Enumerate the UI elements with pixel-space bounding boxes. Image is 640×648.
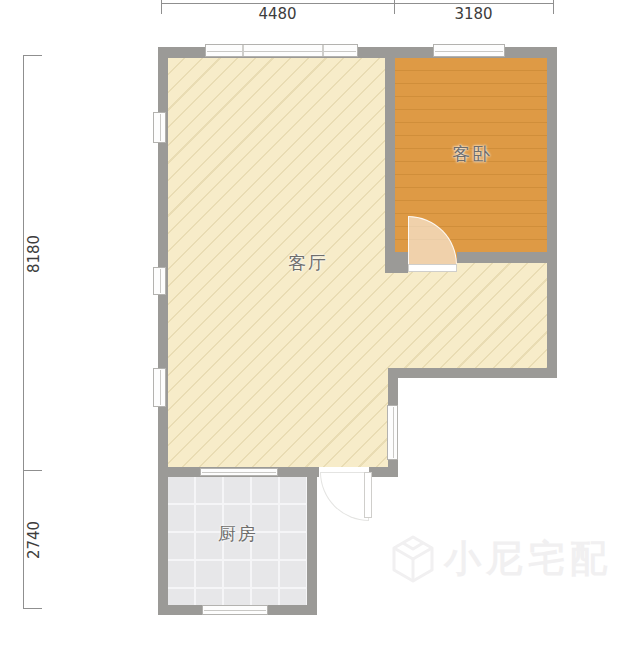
wall-bedroom-left xyxy=(385,47,395,273)
wall-right xyxy=(547,47,557,378)
dimension-label-top-left: 4480 xyxy=(161,5,394,23)
room-label-living: 客厅 xyxy=(263,251,353,275)
wall-bedroom-bottom xyxy=(457,252,557,263)
wall-step-horizontal xyxy=(388,368,557,378)
entry-door-leaf xyxy=(364,472,372,518)
room-label-kitchen: 厨房 xyxy=(193,522,283,546)
room-label-bedroom: 客卧 xyxy=(427,142,517,166)
window-mullion xyxy=(322,45,324,56)
window-mullion xyxy=(242,45,244,56)
watermark: 小尼宅配 xyxy=(390,534,612,584)
wall-bedroom-door-jamb xyxy=(395,252,408,273)
watermark-text: 小尼宅配 xyxy=(444,534,612,584)
window-left-lower xyxy=(153,368,166,407)
window-living-top xyxy=(205,44,358,57)
dimension-tick xyxy=(23,470,42,471)
dimension-tick xyxy=(553,0,554,14)
wall-kitchen-right xyxy=(307,467,317,615)
window-step-right xyxy=(387,405,398,460)
bedroom-door-leaf xyxy=(408,264,457,272)
watermark-logo-icon xyxy=(390,535,436,583)
dimension-tick xyxy=(23,55,42,56)
entry-door-arc xyxy=(320,472,369,521)
window-left-middle xyxy=(153,267,166,295)
window-bedroom-top xyxy=(433,44,505,57)
dimension-line xyxy=(161,3,554,4)
window-left-upper xyxy=(153,112,166,143)
dimension-tick xyxy=(23,608,42,609)
floorplan-canvas: 4480 3180 8180 2740 客厅 客卧 厨房 xyxy=(0,0,640,648)
kitchen-door-opening-symbol xyxy=(200,468,278,476)
dimension-label-left-lower: 2740 xyxy=(25,518,43,562)
dimension-label-top-right: 3180 xyxy=(394,5,553,23)
window-kitchen-bottom xyxy=(202,605,268,615)
dimension-line xyxy=(23,55,24,608)
dimension-label-left-upper: 8180 xyxy=(25,232,43,276)
